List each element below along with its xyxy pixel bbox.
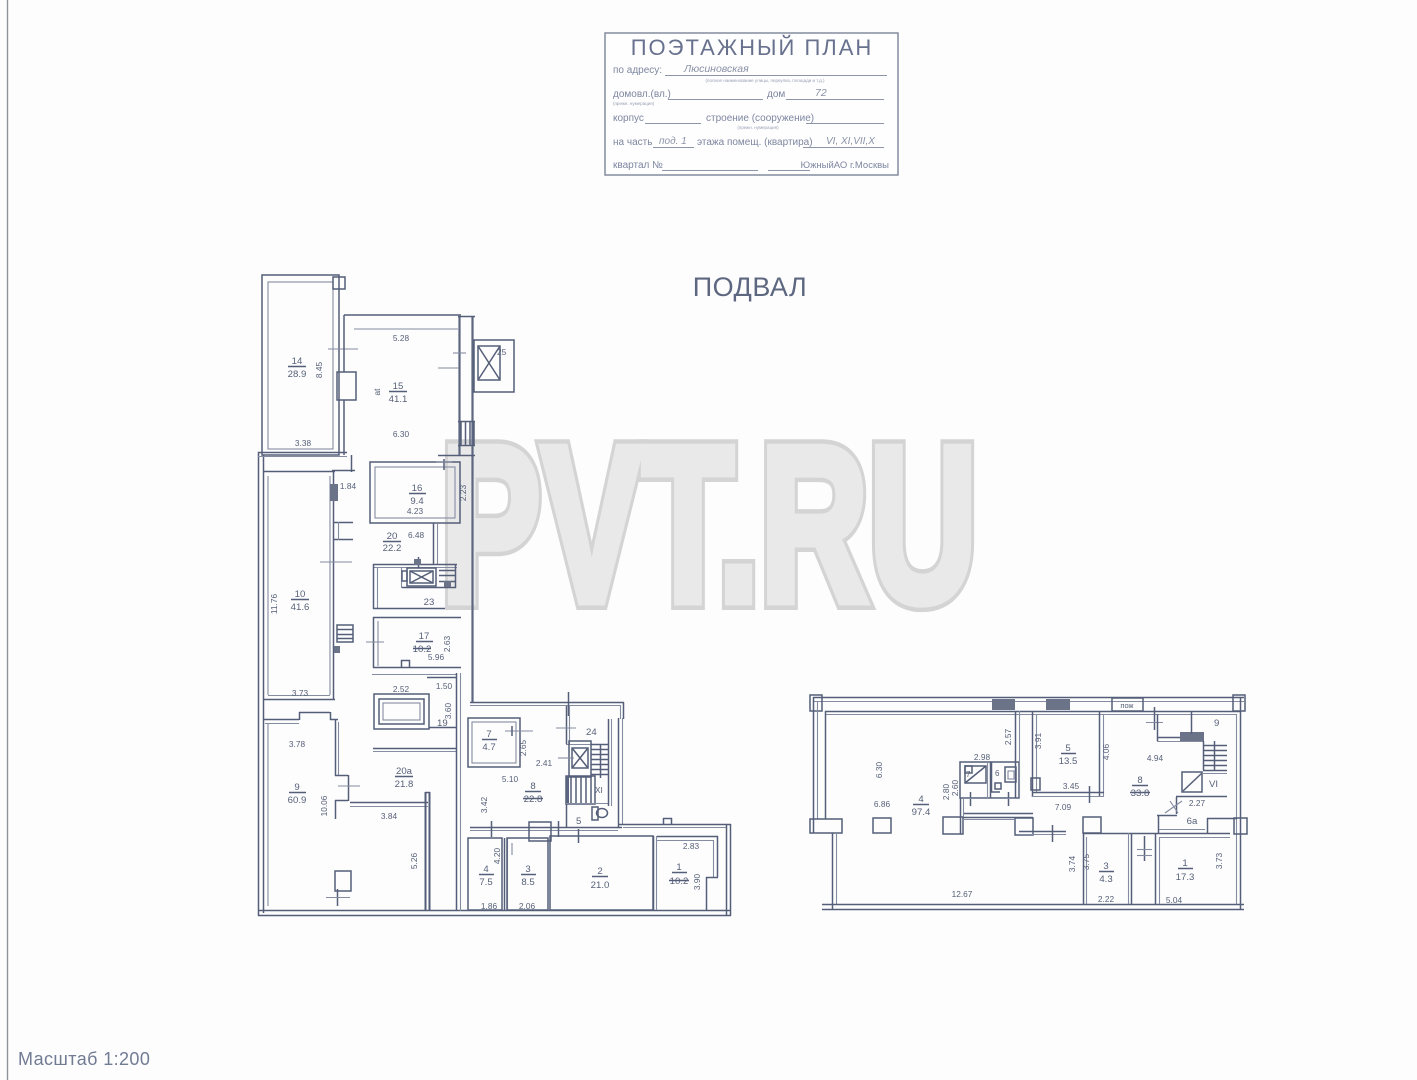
svg-text:8: 8 [530, 781, 535, 792]
svg-text:XI: XI [595, 785, 603, 795]
svg-text:домовл.(вл.): домовл.(вл.) [613, 89, 671, 100]
svg-text:5.04: 5.04 [1166, 895, 1183, 905]
svg-text:2.57: 2.57 [1003, 729, 1013, 746]
svg-text:квартал №: квартал № [613, 160, 663, 171]
svg-text:6.30: 6.30 [393, 429, 410, 439]
svg-text:72: 72 [815, 87, 827, 99]
svg-text:1: 1 [1182, 858, 1187, 869]
svg-text:17: 17 [419, 631, 430, 642]
svg-text:2: 2 [597, 866, 602, 877]
svg-text:ПОДВАЛ: ПОДВАЛ [693, 272, 808, 302]
svg-text:2.63: 2.63 [442, 636, 452, 653]
svg-text:33.8: 33.8 [1131, 788, 1150, 799]
svg-text:3.38: 3.38 [295, 438, 312, 448]
svg-text:1.84: 1.84 [340, 481, 357, 491]
svg-text:2.60: 2.60 [950, 780, 960, 797]
svg-text:7: 7 [486, 729, 491, 740]
svg-text:ПОЭТАЖНЫЙ ПЛАН: ПОЭТАЖНЫЙ ПЛАН [631, 35, 874, 60]
svg-text:3.90: 3.90 [692, 874, 702, 891]
svg-text:28.9: 28.9 [288, 369, 307, 380]
svg-text:5.28: 5.28 [393, 333, 410, 343]
svg-text:60.9: 60.9 [288, 795, 307, 806]
svg-text:15: 15 [393, 381, 404, 392]
svg-text:8.5: 8.5 [521, 877, 534, 888]
svg-text:20а: 20а [396, 766, 413, 777]
svg-text:6.48: 6.48 [408, 530, 425, 540]
svg-text:5.10: 5.10 [502, 774, 519, 784]
svg-text:3.73: 3.73 [292, 688, 309, 698]
svg-text:5.96: 5.96 [428, 652, 445, 662]
svg-text:2.27: 2.27 [1189, 798, 1206, 808]
svg-text:3.75: 3.75 [1081, 854, 1091, 871]
svg-text:7: 7 [966, 770, 971, 779]
svg-text:3.91: 3.91 [1033, 733, 1043, 750]
svg-text:10: 10 [295, 589, 306, 600]
svg-text:16: 16 [412, 483, 423, 494]
svg-text:6.86: 6.86 [874, 799, 891, 809]
svg-text:2.52: 2.52 [393, 684, 410, 694]
svg-text:4.7: 4.7 [482, 742, 495, 753]
svg-text:13.5: 13.5 [1059, 756, 1078, 767]
svg-text:под. 1: под. 1 [659, 136, 687, 147]
svg-text:21.0: 21.0 [591, 880, 610, 891]
svg-text:10.06: 10.06 [319, 795, 329, 816]
svg-text:4.94: 4.94 [1147, 753, 1164, 763]
svg-text:6а: 6а [1187, 816, 1198, 827]
svg-text:этажа помещ. (квартира): этажа помещ. (квартира) [697, 137, 813, 148]
svg-text:3.73: 3.73 [1214, 853, 1224, 870]
svg-text:на часть: на часть [613, 137, 652, 148]
svg-text:1.86: 1.86 [481, 901, 498, 911]
svg-text:дом: дом [767, 89, 785, 100]
svg-text:(прежн. нумерация): (прежн. нумерация) [737, 125, 779, 130]
svg-text:по адресу:: по адресу: [613, 65, 662, 76]
svg-text:Люсиновская: Люсиновская [683, 63, 749, 75]
svg-text:17.3: 17.3 [1176, 872, 1195, 883]
svg-text:9: 9 [1214, 718, 1219, 729]
svg-text:4.20: 4.20 [492, 848, 502, 865]
svg-text:41.1: 41.1 [389, 394, 408, 405]
svg-text:4.23: 4.23 [407, 506, 424, 516]
svg-text:2.41: 2.41 [536, 758, 553, 768]
svg-text:11.76: 11.76 [269, 594, 279, 615]
svg-text:24: 24 [586, 727, 597, 738]
svg-text:23: 23 [424, 597, 435, 608]
svg-text:3.60: 3.60 [443, 703, 453, 720]
svg-text:5: 5 [1065, 743, 1070, 754]
svg-text:3: 3 [525, 864, 530, 875]
svg-text:10.2: 10.2 [670, 876, 689, 887]
svg-text:2.06: 2.06 [519, 901, 536, 911]
svg-text:1.50: 1.50 [436, 681, 453, 691]
svg-text:5.26: 5.26 [409, 853, 419, 870]
svg-text:1: 1 [676, 862, 681, 873]
svg-text:3.78: 3.78 [289, 739, 306, 749]
svg-text:3.74: 3.74 [1067, 856, 1077, 873]
svg-text:корпус: корпус [613, 113, 644, 124]
svg-text:2.22: 2.22 [1098, 894, 1115, 904]
svg-text:97.4: 97.4 [912, 807, 931, 818]
svg-text:пож: пож [1120, 701, 1133, 710]
svg-text:7.09: 7.09 [1055, 802, 1072, 812]
svg-text:VI, XI,VII,X: VI, XI,VII,X [826, 136, 875, 147]
svg-text:2.23: 2.23 [458, 485, 468, 502]
svg-text:Масштаб 1:200: Масштаб 1:200 [18, 1049, 150, 1069]
svg-text:9: 9 [294, 782, 299, 793]
svg-text:41.6: 41.6 [291, 602, 310, 613]
svg-text:8: 8 [1137, 775, 1142, 786]
svg-text:3.84: 3.84 [381, 811, 398, 821]
svg-text:22.8: 22.8 [524, 794, 543, 805]
svg-text:(полное наименование улицы, пе: (полное наименование улицы, переулка, пл… [706, 78, 825, 83]
svg-text:2.83: 2.83 [683, 841, 700, 851]
svg-text:8.45: 8.45 [314, 362, 324, 379]
svg-text:3: 3 [1103, 861, 1108, 872]
svg-text:6.30: 6.30 [874, 762, 884, 779]
svg-text:4.3: 4.3 [1099, 874, 1112, 885]
svg-text:22.2: 22.2 [383, 543, 402, 554]
svg-text:(прежн. нумерация): (прежн. нумерация) [613, 101, 655, 106]
svg-text:строение (сооружение): строение (сооружение) [706, 113, 814, 124]
svg-text:7.5: 7.5 [479, 877, 492, 888]
svg-text:2.65: 2.65 [518, 740, 528, 757]
svg-text:4: 4 [483, 864, 489, 875]
svg-text:14: 14 [292, 356, 303, 367]
svg-text:PVT.RU: PVT.RU [441, 402, 978, 649]
svg-text:25: 25 [497, 347, 507, 357]
svg-text:4: 4 [918, 794, 924, 805]
svg-text:3.45: 3.45 [1063, 781, 1080, 791]
svg-text:VI: VI [1209, 779, 1218, 790]
svg-text:ЮжныйАО г.Москвы: ЮжныйАО г.Москвы [800, 160, 889, 171]
svg-text:21.8: 21.8 [395, 779, 414, 790]
svg-text:аt: аt [372, 388, 382, 396]
svg-text:5: 5 [576, 816, 581, 827]
svg-text:3.42: 3.42 [479, 797, 489, 814]
svg-text:6: 6 [995, 769, 1000, 778]
svg-text:12.67: 12.67 [952, 889, 973, 899]
svg-text:20: 20 [387, 531, 398, 542]
svg-text:2.98: 2.98 [974, 752, 991, 762]
svg-text:4.06: 4.06 [1101, 744, 1111, 761]
